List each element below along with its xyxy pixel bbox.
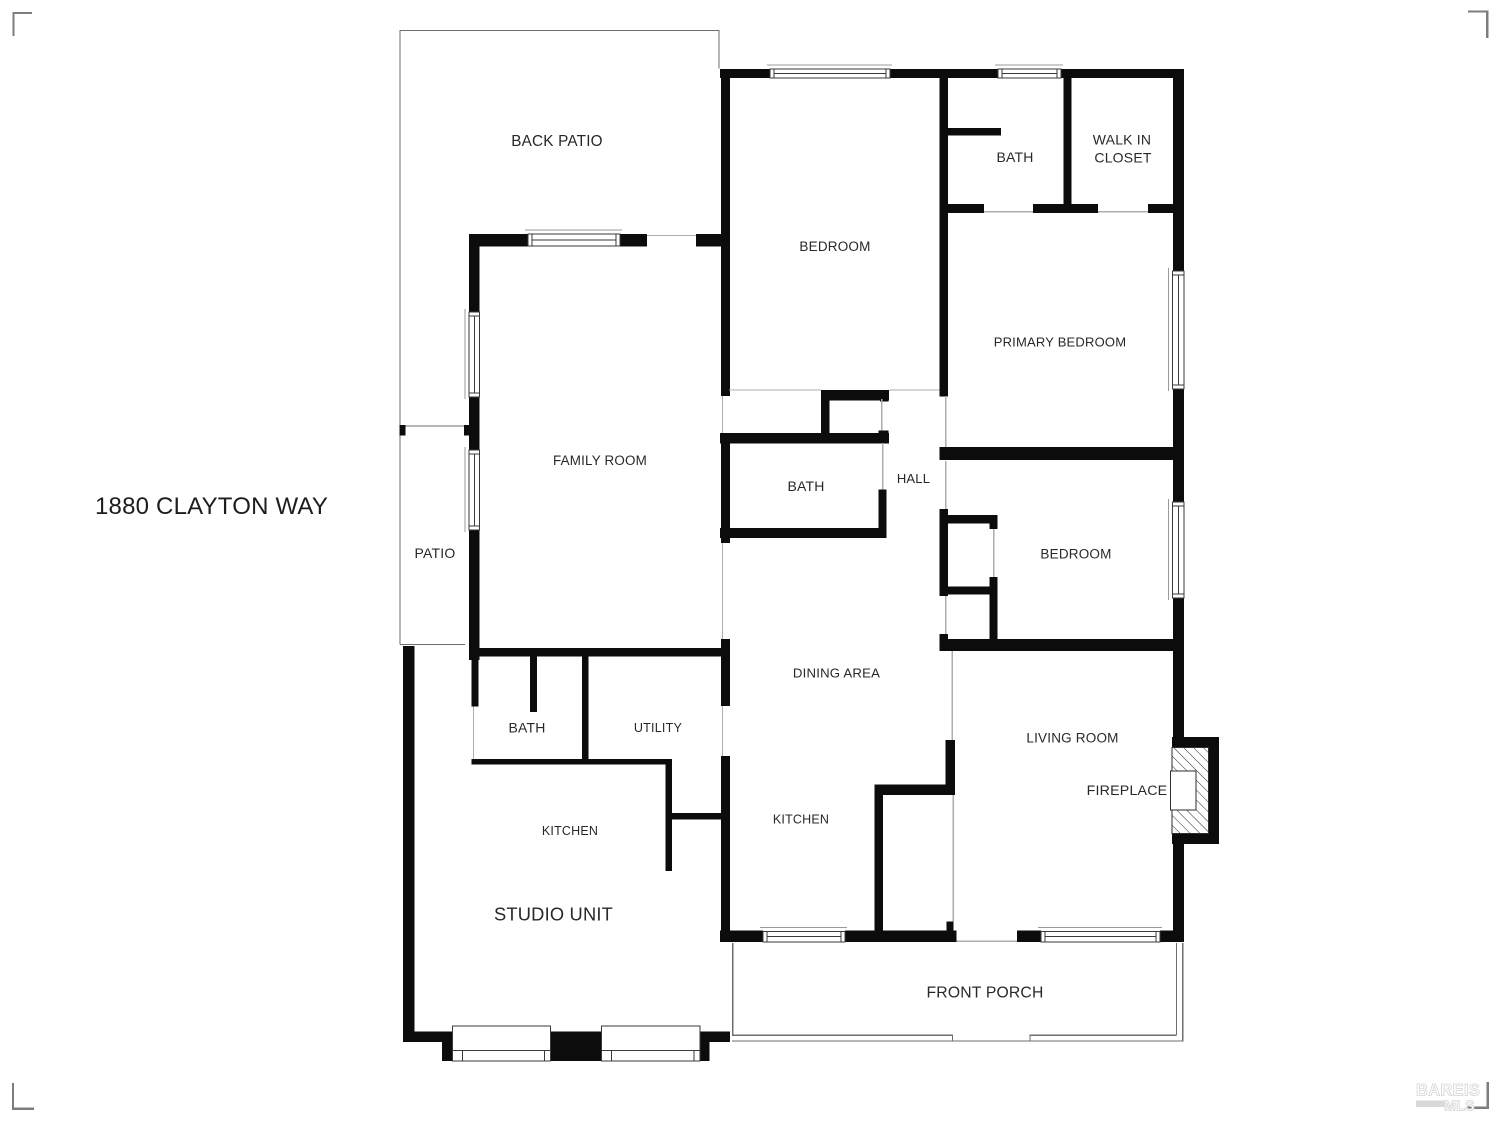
svg-text:DINING AREA: DINING AREA bbox=[793, 666, 880, 681]
svg-text:FIREPLACE: FIREPLACE bbox=[1087, 783, 1168, 799]
svg-text:UTILITY: UTILITY bbox=[634, 721, 683, 735]
svg-text:HALL: HALL bbox=[897, 471, 930, 486]
svg-text:LIVING ROOM: LIVING ROOM bbox=[1026, 730, 1118, 745]
svg-text:BATH: BATH bbox=[508, 719, 545, 735]
svg-text:STUDIO UNIT: STUDIO UNIT bbox=[494, 903, 613, 924]
svg-text:BACK PATIO: BACK PATIO bbox=[511, 133, 603, 150]
svg-text:WALK IN: WALK IN bbox=[1093, 131, 1151, 147]
svg-text:PRIMARY BEDROOM: PRIMARY BEDROOM bbox=[994, 335, 1127, 350]
svg-text:KITCHEN: KITCHEN bbox=[773, 812, 829, 826]
svg-text:FRONT PORCH: FRONT PORCH bbox=[927, 985, 1044, 1002]
svg-text:BEDROOM: BEDROOM bbox=[799, 239, 870, 254]
svg-text:BAREIS: BAREIS bbox=[1416, 1082, 1480, 1100]
svg-text:BATH: BATH bbox=[996, 149, 1033, 165]
svg-text:1880 CLAYTON WAY: 1880 CLAYTON WAY bbox=[95, 493, 328, 520]
svg-text:FAMILY ROOM: FAMILY ROOM bbox=[553, 453, 647, 468]
svg-text:BEDROOM: BEDROOM bbox=[1040, 546, 1111, 561]
svg-text:CLOSET: CLOSET bbox=[1094, 149, 1151, 165]
svg-text:MLS: MLS bbox=[1444, 1099, 1475, 1115]
svg-text:PATIO: PATIO bbox=[415, 545, 456, 561]
svg-text:BATH: BATH bbox=[787, 478, 824, 494]
svg-text:KITCHEN: KITCHEN bbox=[542, 824, 598, 838]
